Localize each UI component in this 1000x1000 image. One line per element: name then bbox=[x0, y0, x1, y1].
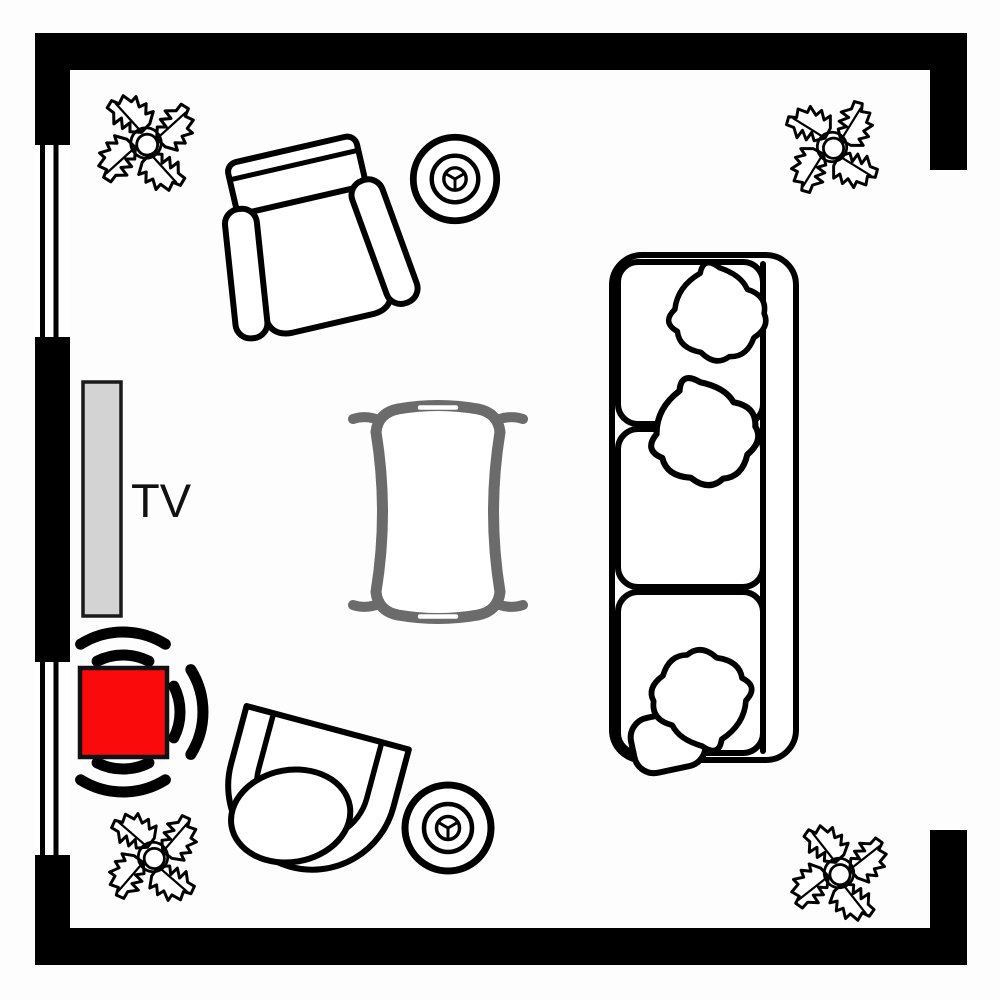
sofa-icon bbox=[612, 255, 796, 777]
tv-icon bbox=[83, 382, 121, 616]
plant-icon-top-left bbox=[82, 79, 211, 208]
tv-label: TV bbox=[131, 474, 192, 527]
floor-plan-canvas: TV bbox=[0, 0, 1000, 1000]
plant-icon-top-right bbox=[773, 88, 891, 206]
speaker-icon bbox=[80, 632, 203, 792]
round-stool-icon-top bbox=[413, 137, 496, 220]
coffee-table-icon bbox=[353, 406, 523, 619]
window-upper-left bbox=[35, 145, 70, 337]
window-lower-left bbox=[35, 662, 70, 855]
floor-plan: TV bbox=[0, 0, 1000, 1000]
plant-icon-bottom-right bbox=[774, 808, 904, 938]
wall-bottom bbox=[35, 928, 967, 965]
armchair-icon bbox=[198, 128, 423, 345]
wall-top bbox=[35, 33, 967, 70]
wall-right-upper bbox=[930, 33, 967, 170]
round-stool-icon-bottom bbox=[405, 785, 491, 871]
tub-chair-icon bbox=[202, 705, 409, 906]
plant-icon-bottom-left bbox=[97, 801, 210, 914]
